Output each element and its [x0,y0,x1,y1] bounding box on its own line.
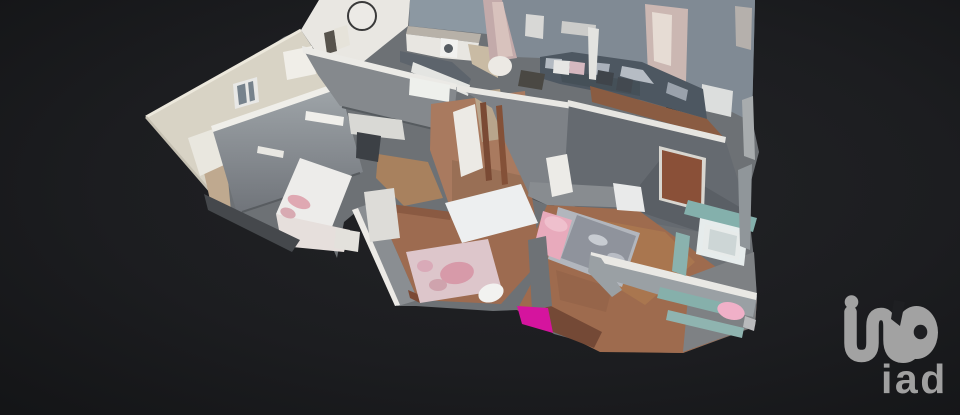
svg-text:iad: iad [881,356,948,402]
